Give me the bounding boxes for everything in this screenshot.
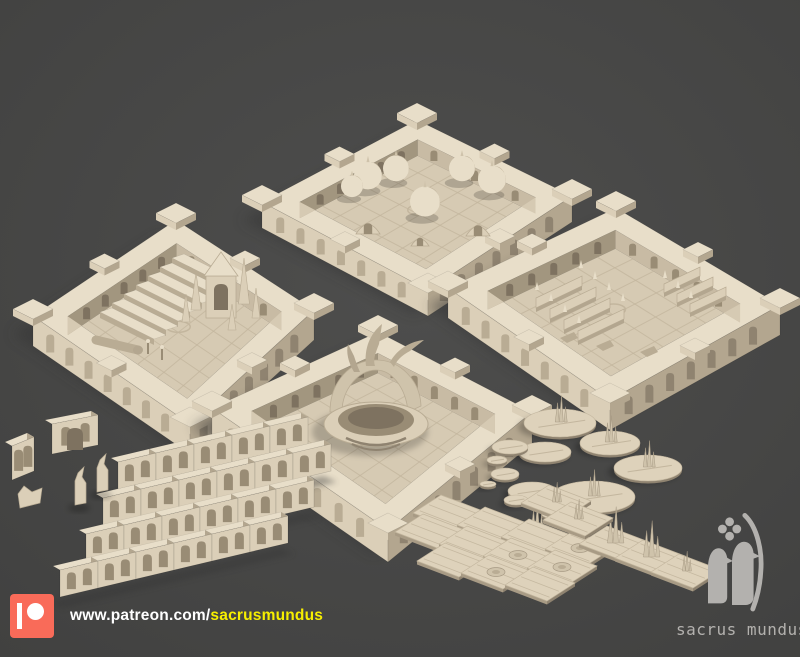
patreon-icon-bar [17,603,22,629]
patreon-url: www.patreon.com/sacrusmundus [70,607,323,625]
brand-name: sacrus mundus [676,620,800,639]
brand-lockup: sacrus mundus [676,509,800,639]
patreon-bar: www.patreon.com/sacrusmundus [10,594,323,638]
patreon-url-username: sacrusmundus [210,607,323,624]
render-canvas: www.patreon.com/sacrusmundus sacrus mund… [0,0,800,657]
gothic-arch-monks-icon [692,512,772,618]
monk-left [708,548,733,603]
patreon-icon [10,594,54,638]
patreon-url-prefix: www.patreon.com/ [70,607,210,624]
patreon-icon-dot [27,603,44,620]
